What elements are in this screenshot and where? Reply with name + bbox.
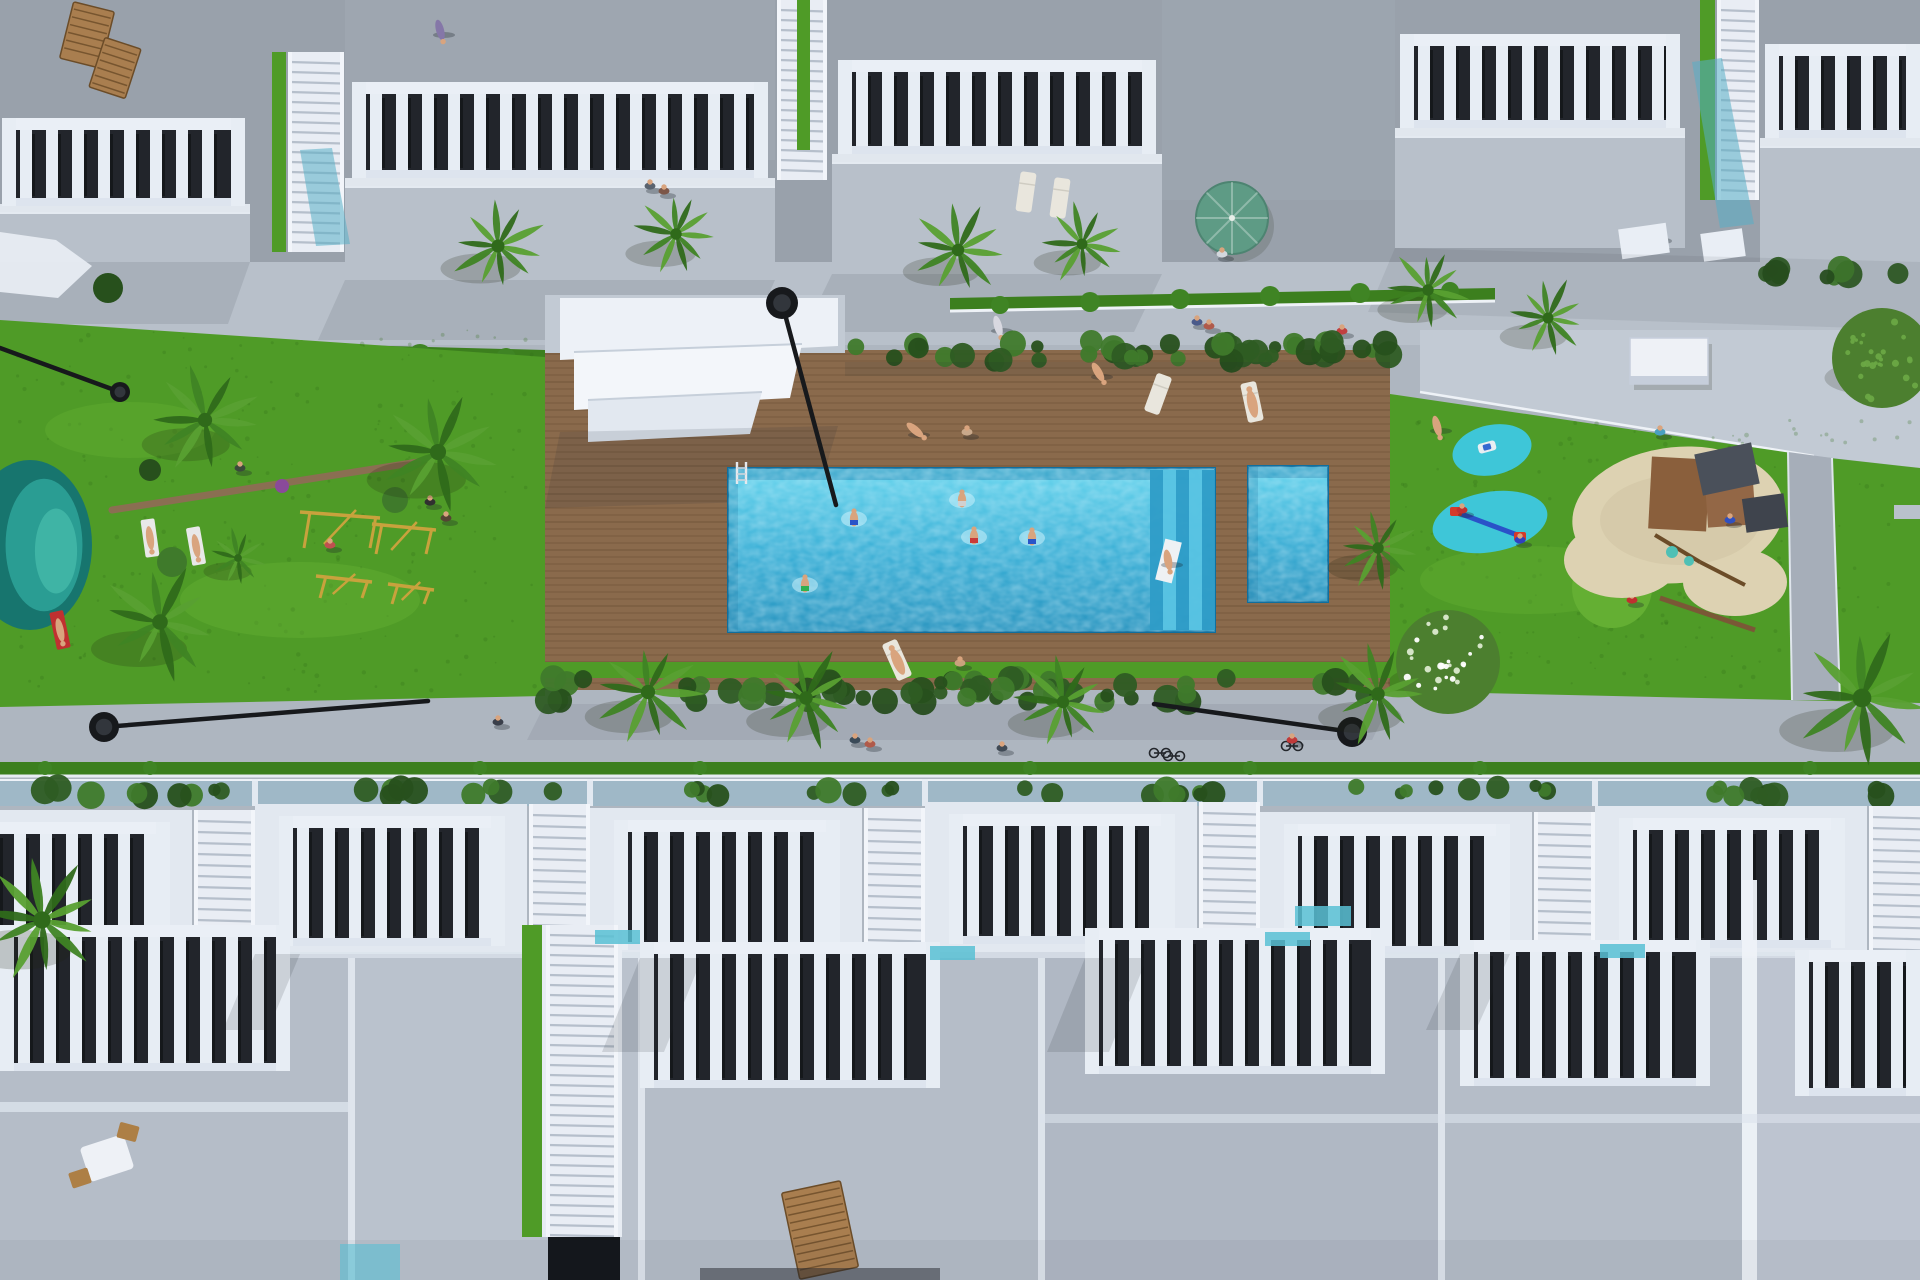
speckle-dot (1788, 419, 1791, 422)
speckle-dot (220, 458, 222, 460)
speckle-dot (433, 380, 435, 382)
stair-step (1536, 900, 1593, 902)
speckle-dot (1548, 497, 1551, 500)
speckle-dot (1403, 483, 1408, 488)
railing-slat (1149, 824, 1161, 936)
flower-dot (1425, 666, 1432, 673)
palm-crown (234, 554, 242, 562)
speckle-dot (1859, 483, 1861, 485)
play-roof (1742, 493, 1788, 533)
stair-step (866, 819, 923, 821)
speckle-dot (451, 401, 456, 406)
balcony-railing (352, 82, 768, 178)
speckle-dot (1881, 484, 1884, 487)
speckle-dot (1608, 629, 1610, 631)
speckle-dot (374, 428, 377, 431)
speckle-dot (1676, 659, 1678, 661)
stairs (1869, 806, 1920, 956)
railing-slat (1783, 54, 1795, 130)
aerial-render-stage (0, 0, 1920, 1280)
railing-slat (479, 826, 491, 938)
speckle-dot (466, 329, 468, 331)
leaf-dot (1891, 318, 1898, 325)
stair-step (866, 852, 923, 854)
stair-step (1201, 901, 1258, 903)
water-spot (1684, 556, 1694, 566)
balcony-railing (1765, 44, 1920, 138)
parapet (1760, 138, 1920, 148)
stair-step (548, 1005, 616, 1007)
hedge-bush (856, 690, 871, 705)
hedge-bush (1458, 778, 1480, 800)
speckle-dot (164, 481, 166, 483)
speckle-dot (36, 379, 38, 381)
railing-slat (1233, 938, 1245, 1066)
flower-dot (1435, 677, 1442, 684)
railing-post (1765, 44, 1779, 138)
speckle-dot (143, 516, 146, 519)
flower-dot (1444, 664, 1449, 669)
stair-step (196, 876, 253, 878)
speckle-dot (103, 575, 106, 578)
stair-step (1536, 922, 1593, 924)
leaf-dot (1901, 335, 1906, 340)
speckle-dot (1578, 637, 1580, 639)
speckle-dot (287, 557, 292, 562)
leaf-dot (1861, 362, 1867, 368)
scene-rendering (0, 0, 1920, 1280)
stair-step (548, 1105, 616, 1107)
stair-step (1871, 894, 1920, 896)
flower-dot (1454, 667, 1460, 673)
speckle-dot (86, 333, 91, 338)
speckle-dot (1830, 438, 1834, 442)
speckle-dot (245, 436, 250, 441)
stair-rail (1534, 812, 1538, 962)
person-head (327, 538, 332, 543)
stair-step (290, 102, 342, 104)
palm-crown (1543, 313, 1554, 324)
speckle-dot (270, 381, 273, 384)
flower-dot (1414, 637, 1419, 642)
railing-slat (658, 830, 670, 942)
shrub (143, 761, 157, 775)
speckle-dot (1417, 420, 1421, 424)
speckle-dot (79, 389, 82, 392)
railing-slat (788, 830, 800, 942)
railing-slat (1116, 70, 1128, 146)
speckle-dot (379, 338, 382, 341)
speckle-dot (524, 486, 528, 490)
speckle-dot (464, 599, 467, 602)
stair-step (866, 929, 923, 931)
stair-step (1871, 828, 1920, 830)
speckle-dot (188, 347, 192, 351)
flower-dot (1447, 660, 1451, 664)
railing-slat (734, 92, 746, 170)
speckle-dot (1420, 531, 1422, 533)
pool-step (1202, 470, 1215, 630)
palm-crown (152, 614, 168, 630)
hedge-bush (842, 782, 866, 806)
railing-cap (1284, 824, 1510, 836)
stair-step (548, 1175, 616, 1177)
leaf-dot (1874, 361, 1878, 365)
flower-bush (275, 479, 289, 493)
railing-slat (72, 128, 84, 198)
palm-crown (799, 691, 813, 705)
flower-dot (1444, 676, 1448, 680)
speckle-dot (476, 335, 480, 339)
stair-step (1719, 50, 1757, 52)
stair-step (548, 1095, 616, 1097)
stair-rail (1869, 806, 1873, 956)
person-head (1727, 513, 1732, 518)
railing-slat (1767, 828, 1779, 940)
speckle-dot (1887, 523, 1890, 526)
speckle-dot (131, 572, 135, 576)
aerial-render (0, 0, 1920, 1280)
speckle-dot (346, 525, 348, 527)
speckle-dot (235, 369, 239, 373)
railing-slat (578, 92, 590, 170)
railing-slat (98, 128, 110, 198)
stair-step (531, 815, 588, 817)
speckle-dot (491, 393, 493, 395)
stair-step (1201, 846, 1258, 848)
speckle-dot (489, 437, 492, 440)
hedge-bush (741, 677, 766, 702)
speckle-dot (47, 438, 49, 440)
speckle-dot (1426, 608, 1430, 612)
stair-step (866, 918, 923, 920)
plunge-pool (1600, 944, 1645, 958)
hedge-bush (1353, 340, 1372, 359)
glass-divider (1592, 779, 1598, 806)
speckle-dot (375, 685, 378, 688)
speckle-dot (1857, 596, 1859, 598)
stair-step (290, 92, 342, 94)
speckle-dot (162, 530, 166, 534)
stair-step (1719, 20, 1757, 22)
railing-slat (1663, 828, 1675, 940)
stair-rail (823, 0, 827, 180)
railing-post (1696, 940, 1710, 1086)
railing-slat (349, 826, 361, 938)
leaf-dot (1858, 374, 1863, 379)
speckle-dot (1732, 435, 1734, 437)
speckle-dot (295, 392, 300, 397)
speckle-dot (1646, 681, 1650, 685)
speckle-dot (291, 496, 295, 500)
railing-slat (370, 92, 382, 170)
railing-slat (710, 952, 722, 1080)
stair-step (1201, 813, 1258, 815)
speckle-dot (1704, 676, 1706, 678)
speckle-dot (16, 374, 19, 377)
speckle-dot (394, 440, 397, 443)
speckle-dot (1838, 525, 1840, 527)
stair-step (1536, 845, 1593, 847)
speckle-dot (362, 670, 366, 674)
railing-slat (1458, 834, 1470, 946)
railing-slat (1090, 70, 1102, 146)
railing-slat (1556, 950, 1568, 1078)
speckle-dot (314, 542, 316, 544)
person-head (921, 435, 926, 440)
speckle-dot (1742, 665, 1746, 669)
stair-step (196, 887, 253, 889)
railing-slat (448, 92, 460, 170)
hedge-bush (1529, 780, 1541, 792)
railing-post (1795, 950, 1809, 1096)
railing-slat (604, 92, 616, 170)
person-head (1289, 733, 1294, 738)
speckle-dot (1644, 674, 1648, 678)
railing-slat (323, 826, 335, 938)
stair-step (196, 920, 253, 922)
speckle-dot (1558, 442, 1563, 447)
stair-step (548, 1225, 616, 1227)
speckle-dot (483, 637, 487, 641)
speckle-dot (489, 506, 491, 508)
stair-step (1871, 839, 1920, 841)
roof-divider (348, 958, 355, 1280)
railing-cap (1400, 120, 1680, 128)
shrub (1243, 761, 1257, 775)
speckle-dot (1537, 470, 1540, 473)
speckle-dot (417, 505, 421, 509)
hedge-bush (354, 777, 379, 802)
kids-pool (1248, 466, 1328, 602)
speckle-dot (360, 342, 365, 347)
speckle-dot (377, 423, 379, 425)
speckle-dot (1588, 459, 1593, 464)
speckle-dot (1573, 421, 1577, 425)
speckle-dot (1841, 608, 1845, 612)
speckle-dot (328, 480, 331, 483)
speckle-dot (1603, 435, 1607, 439)
stair-step (548, 945, 616, 947)
speckle-dot (40, 676, 44, 680)
railing-post (1906, 44, 1920, 138)
person-head (964, 425, 969, 430)
hedge-bush (1041, 783, 1063, 805)
stair-step (1871, 850, 1920, 852)
stair-step (1201, 890, 1258, 892)
palm-crown (492, 240, 505, 253)
stair-step (1871, 938, 1920, 940)
stair-step (548, 1085, 616, 1087)
speckle-dot (1567, 437, 1571, 441)
shrub (473, 761, 487, 775)
stair-step (1536, 878, 1593, 880)
railing-cap (2, 118, 245, 130)
stair-step (531, 837, 588, 839)
railing-slat (1608, 950, 1620, 1078)
stair-step (1201, 879, 1258, 881)
hedge-bush (1153, 776, 1180, 803)
speckle-dot (1661, 613, 1665, 617)
railing-slat (1887, 54, 1899, 130)
hedge-bush (1322, 668, 1350, 696)
stair-step (1201, 857, 1258, 859)
bush (139, 459, 161, 481)
speckle-dot (1744, 433, 1749, 438)
speckle-dot (1594, 421, 1599, 426)
stair-step (548, 995, 616, 997)
railing-cap (1085, 928, 1385, 940)
pool-step (1150, 470, 1163, 630)
speckle-dot (1405, 506, 1407, 508)
speckle-dot (1473, 480, 1478, 485)
speckle-dot (113, 583, 117, 587)
speckle-dot (69, 365, 71, 367)
speckle-dot (530, 584, 532, 586)
speckle-dot (191, 570, 196, 575)
railing-slat (1064, 70, 1076, 146)
stair-rail (777, 0, 781, 180)
stair-step (548, 1205, 616, 1207)
speckle-dot (139, 573, 141, 575)
speckle-dot (261, 543, 264, 546)
leaf-dot (1868, 395, 1875, 402)
leaf-dot (1845, 350, 1850, 355)
plunge-pool (1295, 906, 1351, 926)
swimmer-head (971, 526, 976, 531)
railing-slat (1652, 44, 1664, 120)
speckle-dot (231, 357, 234, 360)
speckle-dot (291, 463, 293, 465)
speckle-dot (1877, 606, 1879, 608)
speckle-dot (522, 392, 527, 397)
railing-post (491, 816, 505, 946)
speckle-dot (532, 684, 536, 688)
speckle-dot (523, 338, 527, 342)
railing-cap (1795, 1088, 1920, 1096)
stair-step (290, 132, 342, 134)
stair-step (548, 1185, 616, 1187)
speckle-dot (336, 558, 339, 561)
flower-dot (1416, 683, 1421, 688)
stair-step (1871, 916, 1920, 918)
glass-divider (252, 779, 258, 806)
balcony-railing (1085, 928, 1385, 1074)
speckle-dot (1825, 432, 1829, 436)
stair-step (548, 1155, 616, 1157)
roof-band (1040, 1114, 1920, 1123)
speckle-dot (408, 456, 410, 458)
railing-slat (453, 826, 465, 938)
railing-slat (148, 935, 160, 1063)
speckle-dot (28, 680, 31, 683)
palm-crown (1853, 689, 1872, 708)
glass-divider (587, 779, 593, 806)
speckle-dot (530, 353, 534, 357)
railing-cap (838, 60, 1156, 72)
plunge-pool (930, 946, 975, 960)
palm-crown (430, 444, 446, 460)
railing-slat (1861, 54, 1873, 130)
railing-slat (710, 830, 722, 942)
stair-step (866, 874, 923, 876)
swimmer-head (851, 508, 856, 513)
railing-slat (1813, 960, 1825, 1088)
railing-cap (1795, 950, 1920, 962)
speckle-dot (439, 354, 443, 358)
stair-step (1536, 856, 1593, 858)
railing-cap (1460, 1078, 1710, 1086)
stair-step (779, 160, 825, 162)
speckle-dot (1402, 619, 1406, 623)
railing-slat (684, 830, 696, 942)
stair-step (531, 903, 588, 905)
speckle-dot (401, 682, 405, 686)
speckle-dot (227, 536, 230, 539)
railing-slat (762, 952, 774, 1080)
railing-slat (908, 70, 920, 146)
stair-step (548, 1195, 616, 1197)
speckle-dot (1607, 642, 1609, 644)
speckle-dot (264, 410, 268, 414)
speckle-dot (160, 582, 162, 584)
railing-slat (375, 826, 387, 938)
speckle-dot (60, 381, 64, 385)
swim-trunks (1028, 539, 1036, 544)
railing-slat (1418, 44, 1430, 120)
leaf-dot (1854, 338, 1858, 342)
speckle-dot (1431, 533, 1433, 535)
stair-rail (1755, 0, 1759, 200)
palm-crown (670, 228, 681, 239)
stair-step (290, 142, 342, 144)
railing-post (826, 820, 840, 950)
flower-dot (1426, 622, 1430, 626)
railing-cap (1460, 940, 1710, 952)
speckle-dot (400, 404, 404, 408)
scene-layers (0, 0, 1920, 1280)
railing-slat (986, 70, 998, 146)
person-head (1437, 435, 1442, 440)
railing-slat (1071, 824, 1083, 936)
hedge-bush (1706, 785, 1723, 802)
stair-step (531, 881, 588, 883)
hedge-bush (1178, 685, 1196, 703)
railing-cap (1765, 44, 1920, 56)
railing-slat (1019, 824, 1031, 936)
stair-green (272, 52, 286, 252)
railing-slat (1432, 834, 1444, 946)
swimming-pool (728, 468, 1215, 632)
speckle-dot (1622, 672, 1626, 676)
speckle-dot (306, 494, 310, 498)
railing-slat (1470, 44, 1482, 120)
stair-step (1719, 10, 1757, 12)
speckle-dot (115, 535, 120, 540)
stair-step (1201, 923, 1258, 925)
railing-slat (708, 92, 720, 170)
railing-slat (396, 92, 408, 170)
roof-terrace (832, 162, 1162, 274)
speckle-dot (79, 656, 82, 659)
stair-step (531, 826, 588, 828)
speckle-dot (207, 629, 212, 634)
roof-band (0, 1102, 348, 1112)
speckle-dot (378, 420, 381, 423)
railing-slat (1155, 938, 1167, 1066)
railing-slat (1123, 824, 1135, 936)
speckle-dot (1508, 672, 1513, 677)
